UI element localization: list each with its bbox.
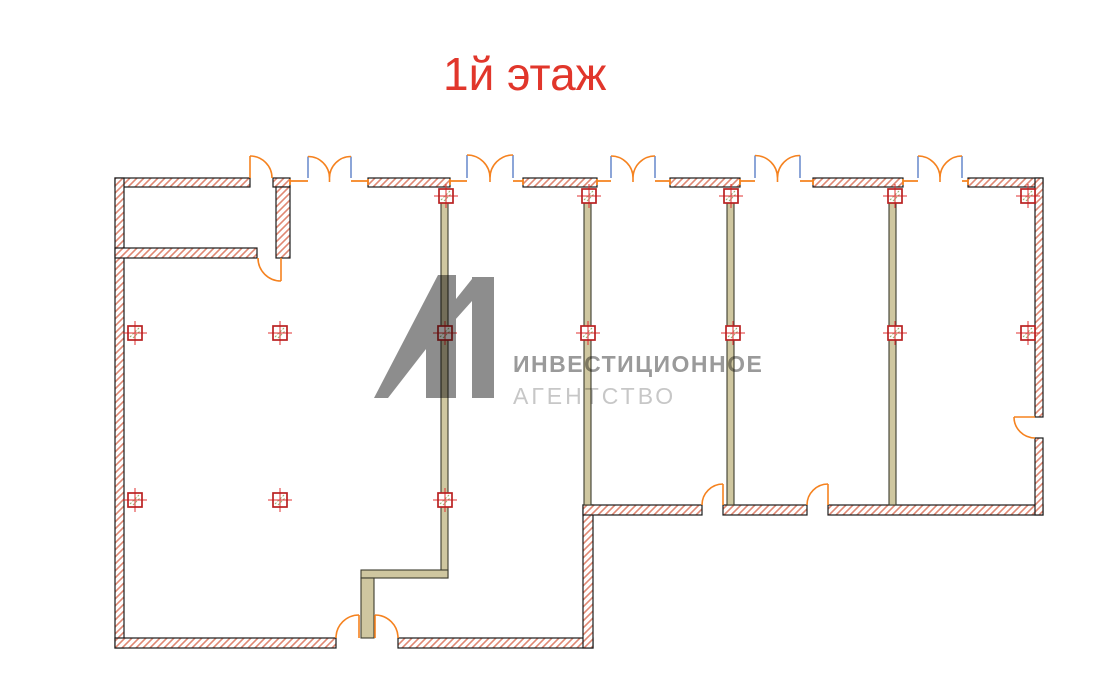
door-room-c [807,484,828,505]
exterior-wall [1035,438,1043,515]
door-swing-arc [250,156,272,178]
door-entrance-left [336,615,359,638]
door-vestibule-inner [258,258,281,281]
exterior-wall [276,187,290,258]
double-door [740,156,813,186]
door-swing-arc [611,156,655,182]
door-swing-arc [755,156,800,183]
door-swing-arc [336,615,359,638]
partition-wall [584,203,591,505]
door-swing-arc [807,484,828,505]
door-swing-arc [918,156,962,182]
column [123,321,147,345]
double-door [597,156,670,185]
double-door [450,155,523,185]
column [434,184,458,208]
exterior-wall [583,505,593,648]
exterior-wall [813,178,903,187]
exterior-wall [115,178,250,187]
column [577,184,601,208]
partition-wall [889,203,896,505]
partition-wall [361,578,374,638]
door-vestibule-top [250,156,272,178]
column [721,321,745,345]
exterior-wall [968,178,1043,187]
door-swing-arc [308,157,351,183]
exterior-wall [723,505,807,515]
partition-wall [727,203,734,505]
exterior-wall [670,178,740,187]
exterior-wall [368,178,450,187]
double-door [290,157,368,186]
column [576,321,600,345]
door-entrance-right [375,615,398,638]
column [268,321,292,345]
column [883,184,907,208]
door-swing-arc [375,615,398,638]
door-swing-arc [467,155,513,182]
column [719,184,743,208]
floor-plan [0,0,1120,676]
column [433,321,457,345]
double-door [903,156,968,185]
partition-wall [441,203,448,578]
exterior-wall [1035,178,1043,417]
column [883,321,907,345]
door-sill [450,179,523,185]
exterior-wall [523,178,597,187]
column [433,488,457,512]
door-room-b [702,484,723,505]
column [123,488,147,512]
door-swing-arc [1014,417,1035,438]
door-swing-arc [258,258,281,281]
floor-plan-page: 1й этаж [0,0,1120,676]
exterior-wall [115,248,257,258]
door-sill [740,179,813,185]
exterior-wall [583,505,702,515]
column [268,488,292,512]
exterior-wall [828,505,1043,515]
door-swing-arc [702,484,723,505]
partition-wall [361,570,448,578]
door-sill [903,179,968,185]
door-right-wall [1014,417,1035,438]
exterior-wall [273,178,290,187]
exterior-wall [398,638,593,648]
exterior-wall [115,638,336,648]
